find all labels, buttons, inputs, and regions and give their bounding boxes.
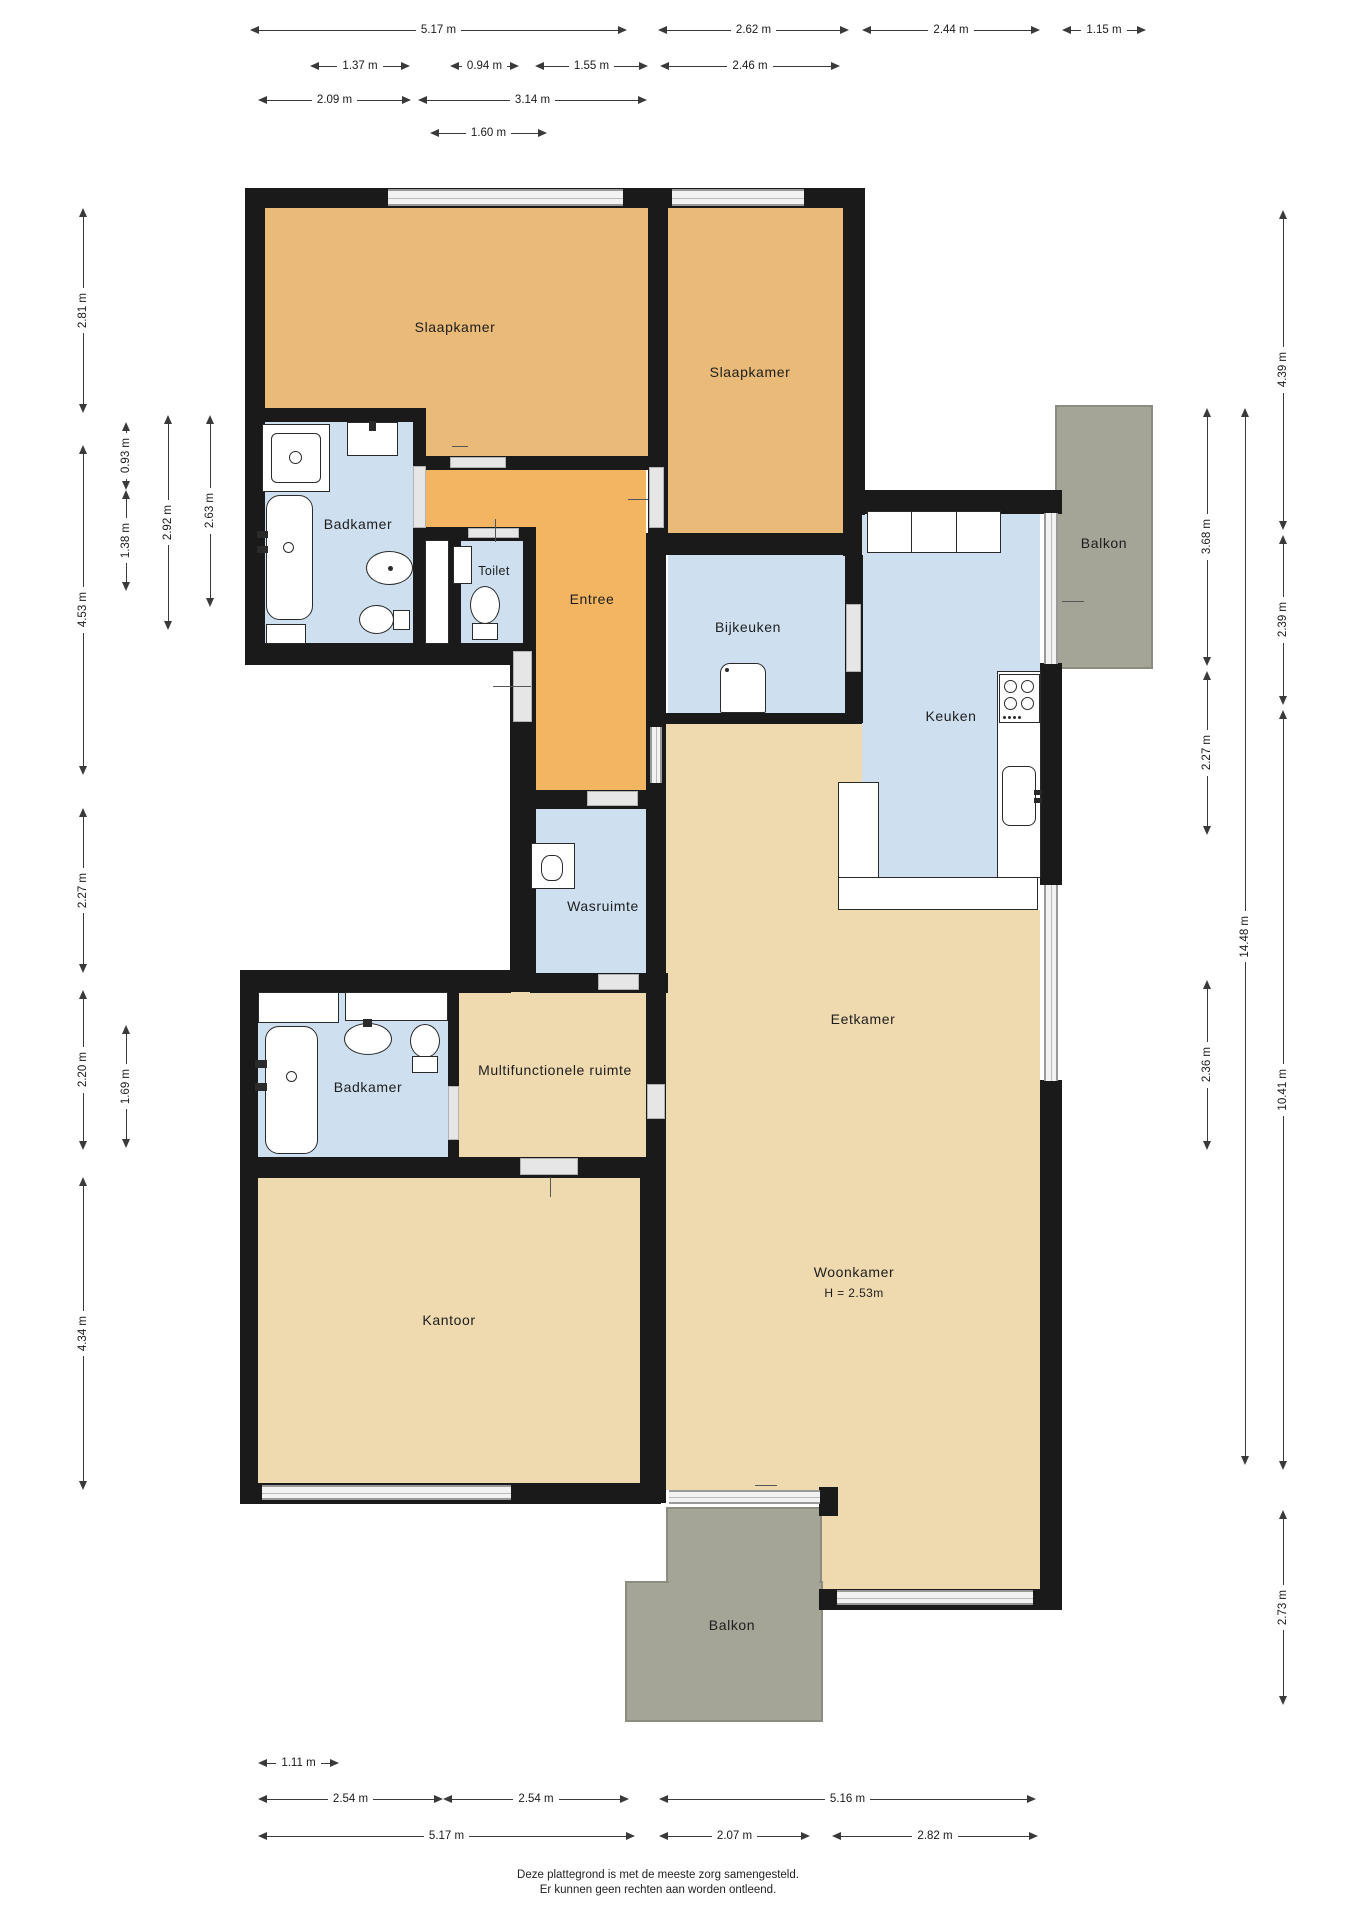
dim-right-3: 2.39 m xyxy=(1276,535,1290,705)
dim-left-3: 2.92 m xyxy=(161,415,175,630)
window xyxy=(650,727,662,783)
door-opening xyxy=(649,467,664,528)
wall xyxy=(843,513,862,556)
balcony-bottom-upper xyxy=(666,1507,822,1587)
washing-machine-flap xyxy=(541,855,563,881)
window xyxy=(262,1485,511,1500)
room-entree-corridor xyxy=(535,527,646,790)
tap xyxy=(1034,790,1042,795)
toilet-bowl xyxy=(410,1024,440,1058)
room-label-kantoor: Kantoor xyxy=(422,1312,475,1328)
wall xyxy=(240,970,511,993)
dim-left-4: 2.63 m xyxy=(203,415,217,607)
tap xyxy=(257,546,268,553)
dim-right-2: 3.68 m xyxy=(1200,408,1214,666)
tap xyxy=(1034,798,1042,803)
washbasin xyxy=(344,1023,392,1055)
door-swing-line xyxy=(1062,601,1084,602)
vanity-counter xyxy=(258,992,339,1023)
dim-left-9: 1.69 m xyxy=(119,1025,133,1148)
floor-plan: Slaapkamer Slaapkamer Badkamer Toilet En… xyxy=(0,0,1358,1920)
room-label-keuken: Keuken xyxy=(925,708,976,724)
window xyxy=(672,189,804,206)
room-label-eetkamer: Eetkamer xyxy=(831,1011,896,1027)
wall xyxy=(640,1157,661,1503)
bathtub-drain xyxy=(286,1071,297,1082)
bidet-drain xyxy=(388,566,393,571)
dim-right-8: 2.73 m xyxy=(1276,1510,1290,1705)
footer-disclaimer-line-1: Deze plattegrond is met de meeste zorg s… xyxy=(358,1869,958,1881)
cabinet-divider xyxy=(911,511,912,553)
room-label-entree: Entree xyxy=(570,591,615,607)
dim-left-5: 1.38 m xyxy=(119,490,133,591)
stove-knob xyxy=(1003,716,1006,719)
stove-knob xyxy=(1018,716,1021,719)
dim-top-2: 2.62 m xyxy=(658,23,849,37)
dim-top-6: 0.94 m xyxy=(450,59,519,73)
tap xyxy=(369,421,376,431)
dim-right-5: 2.36 m xyxy=(1200,980,1214,1150)
dim-right-6: 14.48 m xyxy=(1238,408,1252,1465)
dim-left-7: 2.27 m xyxy=(76,808,90,973)
dim-top-7: 1.55 m xyxy=(535,59,648,73)
wall xyxy=(648,713,862,724)
shower-drain xyxy=(289,451,302,464)
door-opening xyxy=(598,974,639,990)
room-entree-upper xyxy=(425,470,646,527)
ledge xyxy=(266,624,306,644)
wall xyxy=(240,970,258,1504)
dim-right-7: 10.41 m xyxy=(1276,710,1290,1470)
tap xyxy=(255,1083,267,1091)
dim-top-5: 1.37 m xyxy=(310,59,410,73)
room-label-slaapkamer-1: Slaapkamer xyxy=(415,319,496,335)
toilet-cistern xyxy=(412,1056,438,1073)
window xyxy=(1044,885,1058,1081)
room-label-multifunctionele-ruimte: Multifunctionele ruimte xyxy=(478,1062,632,1078)
dim-bottom-4: 5.16 m xyxy=(659,1792,1036,1806)
wall xyxy=(1040,663,1062,885)
dim-bottom-3: 2.54 m xyxy=(443,1792,629,1806)
burner xyxy=(1021,680,1034,693)
dim-bottom-5: 5.17 m xyxy=(258,1829,635,1843)
balcony-bottom-lower xyxy=(625,1581,823,1722)
wall xyxy=(648,533,862,555)
washbasin xyxy=(453,546,472,584)
room-label-balkon-1: Balkon xyxy=(1081,535,1127,551)
dim-left-10: 4.34 m xyxy=(76,1177,90,1490)
dim-left-6: 4.53 m xyxy=(76,445,90,775)
door-swing-line xyxy=(755,1485,777,1486)
toilet-bowl xyxy=(470,586,500,624)
dim-left-1: 2.81 m xyxy=(76,208,90,413)
dim-top-9: 2.09 m xyxy=(258,93,411,107)
stove-knob xyxy=(1008,716,1011,719)
kitchen-sink xyxy=(1002,766,1036,826)
door-opening xyxy=(468,528,519,538)
wall xyxy=(245,643,535,665)
dim-bottom-6: 2.07 m xyxy=(659,1829,810,1843)
bathtub xyxy=(265,1026,318,1154)
burner xyxy=(1004,697,1017,710)
room-label-wasruimte: Wasruimte xyxy=(567,898,639,914)
bathtub-drain xyxy=(283,542,294,553)
door-swing-line xyxy=(495,519,496,542)
kitchen-cabinets xyxy=(867,511,1001,553)
toilet-cistern xyxy=(393,610,410,630)
room-label-slaapkamer-2: Slaapkamer xyxy=(710,364,791,380)
dim-bottom-2: 2.54 m xyxy=(258,1792,443,1806)
balcony-bottom-joint xyxy=(669,1579,819,1589)
door-opening xyxy=(647,1084,665,1119)
window xyxy=(837,1590,1033,1605)
dim-left-8: 2.20 m xyxy=(76,990,90,1150)
dim-top-10: 3.14 m xyxy=(418,93,647,107)
wall xyxy=(240,1157,661,1178)
balcony-door xyxy=(669,1490,820,1504)
bathtub xyxy=(266,495,313,620)
room-label-woonkamer: Woonkamer xyxy=(814,1264,895,1280)
dim-top-11: 1.60 m xyxy=(430,126,547,140)
room-label-woonkamer-hoogte: H = 2.53m xyxy=(824,1286,883,1300)
toilet-cistern xyxy=(472,623,498,640)
room-woonkamer-west xyxy=(658,723,862,1490)
dim-top-4: 1.15 m xyxy=(1062,23,1146,37)
tap xyxy=(257,531,268,538)
dim-top-8: 2.46 m xyxy=(660,59,840,73)
door-opening xyxy=(413,466,426,528)
tap xyxy=(363,1019,372,1027)
door-opening xyxy=(587,791,638,806)
room-label-balkon-2: Balkon xyxy=(709,1617,755,1633)
room-label-toilet: Toilet xyxy=(478,564,510,578)
wall xyxy=(819,1487,838,1516)
room-kantoor xyxy=(258,1177,640,1483)
cupboard xyxy=(425,540,449,644)
door-opening xyxy=(846,604,861,672)
cabinet-divider xyxy=(956,511,957,553)
window xyxy=(388,189,623,206)
room-label-badkamer-2: Badkamer xyxy=(334,1079,403,1095)
stove-knob xyxy=(1013,716,1016,719)
tall-cabinet xyxy=(838,782,879,878)
door-opening xyxy=(450,457,506,468)
dim-bottom-1: 1.11 m xyxy=(258,1756,339,1770)
door-swing-line xyxy=(628,499,648,500)
wall xyxy=(245,408,426,422)
wall xyxy=(523,527,536,644)
toilet-bowl xyxy=(359,605,394,634)
dim-right-4: 2.27 m xyxy=(1200,671,1214,835)
wall xyxy=(1040,1080,1062,1610)
footer-disclaimer-line-2: Er kunnen geen rechten aan worden ontlee… xyxy=(358,1884,958,1896)
dim-right-1: 4.39 m xyxy=(1276,210,1290,530)
room-wasruimte xyxy=(530,808,650,973)
boiler-dot xyxy=(725,668,729,672)
wall xyxy=(843,188,865,515)
room-label-bijkeuken: Bijkeuken xyxy=(715,619,781,635)
window xyxy=(1044,513,1058,664)
dim-bottom-7: 2.82 m xyxy=(832,1829,1038,1843)
dim-left-2: 0.93 m xyxy=(119,422,133,490)
room-label-badkamer-1: Badkamer xyxy=(324,516,393,532)
door-swing-line xyxy=(493,686,531,687)
dim-top-1: 5.17 m xyxy=(250,23,627,37)
vanity-counter xyxy=(345,992,448,1021)
door-swing-line xyxy=(452,446,468,447)
door-opening xyxy=(448,1086,459,1140)
door-opening xyxy=(520,1158,578,1175)
kitchen-counter xyxy=(838,877,1038,910)
burner xyxy=(1004,680,1017,693)
door-swing-line xyxy=(550,1177,551,1197)
tap xyxy=(255,1060,267,1068)
burner xyxy=(1021,697,1034,710)
dim-top-3: 2.44 m xyxy=(862,23,1040,37)
